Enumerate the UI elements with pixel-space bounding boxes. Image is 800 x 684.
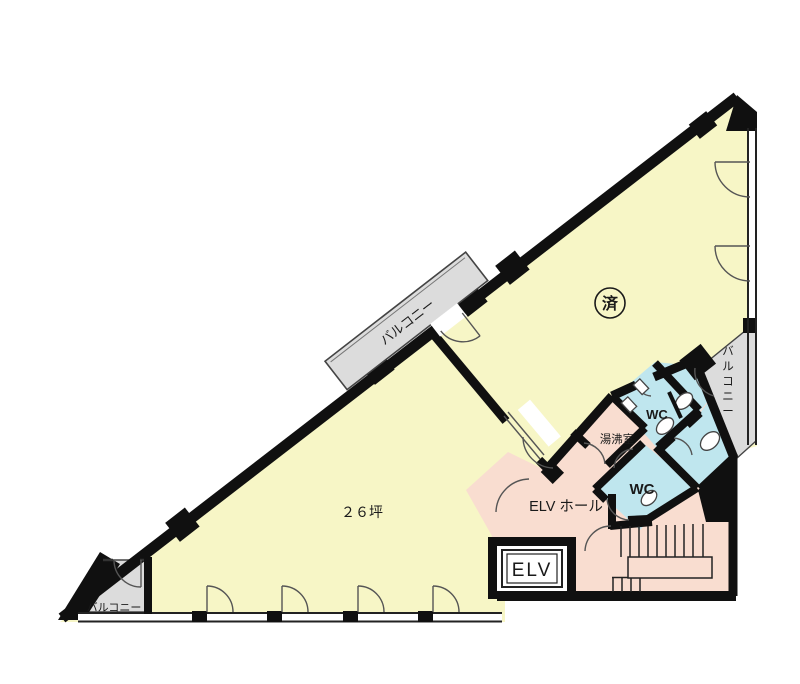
sold-stamp-label: 済	[602, 294, 619, 313]
elevator-label: ELV	[512, 560, 553, 581]
floor-plan-page: バルコニー	[0, 0, 800, 684]
elevator-shaft: ELV	[488, 537, 576, 599]
floor-plan-canvas: バルコニー	[0, 0, 800, 684]
kitchenette-label: 湯沸室	[600, 432, 635, 446]
room-area-label: ２６坪	[341, 504, 383, 520]
bottom-window-band	[78, 611, 502, 622]
wc-lower-label: WC	[630, 481, 655, 498]
wc-upper-label: WC	[646, 407, 668, 422]
elevator-hall-label: ELV ホール	[529, 499, 603, 515]
balcony-bottom-left-label: バルコニー	[87, 601, 142, 614]
balcony-right-label: バルコニー	[722, 345, 734, 418]
